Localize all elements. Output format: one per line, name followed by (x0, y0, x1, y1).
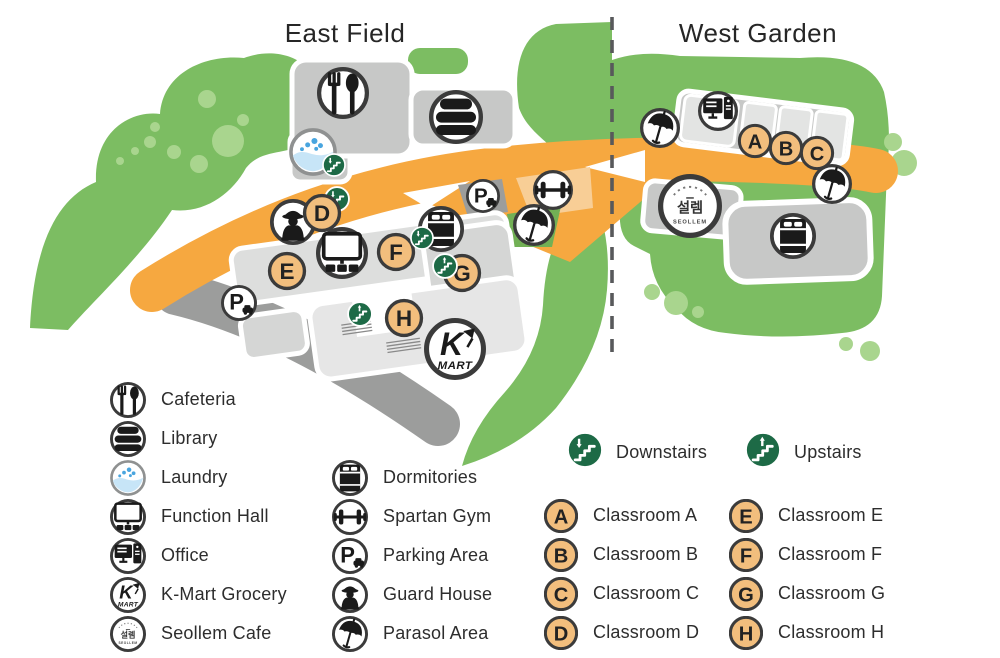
legend-label: Classroom A (593, 505, 697, 526)
svg-text:A: A (554, 506, 569, 528)
parking-icon: P (332, 538, 368, 574)
map-marker-gym (535, 172, 572, 209)
west-garden-title: West Garden (679, 18, 837, 48)
map-marker-classroom-b: B (770, 132, 801, 163)
legend-facilities-column-1: Cafeteria Library Laundry Function Hall (110, 380, 287, 653)
library-icon (110, 421, 146, 457)
classroom-g-legend-icon: G (729, 577, 763, 611)
legend-label: Laundry (161, 467, 227, 488)
upstairs-icon (744, 431, 782, 469)
legend-label: Upstairs (794, 442, 862, 463)
svg-text:D: D (554, 623, 569, 645)
legend-classrooms-column-2: E Classroom E F Classroom F G Classroom … (729, 496, 885, 652)
legend-label: Dormitories (383, 467, 477, 488)
legend-item-parking: P Parking Area (332, 536, 492, 575)
svg-text:E: E (739, 506, 752, 528)
legend-label: Guard House (383, 584, 492, 605)
legend-item-classroom-a: A Classroom A (544, 496, 699, 535)
function-hall-icon (110, 499, 146, 535)
legend-label: Classroom H (778, 622, 884, 643)
map-marker-parking: P (467, 180, 498, 211)
svg-text:P: P (229, 290, 244, 315)
classroom-e-legend-icon: E (729, 499, 763, 533)
legend-item-kmart: K MART K-Mart Grocery (110, 575, 287, 614)
legend-item-downstairs: Downstairs (566, 432, 707, 472)
classroom-icon: A (544, 499, 578, 533)
legend-item-classroom-c: C Classroom C (544, 574, 699, 613)
svg-text:C: C (810, 143, 825, 165)
classroom-a-legend-icon: A (544, 499, 578, 533)
downstairs-legend-icon (566, 431, 604, 474)
map-marker-parasol (642, 108, 679, 146)
map-marker-classroom-c: C (801, 137, 832, 168)
legend-label: Spartan Gym (383, 506, 491, 527)
laundry-legend-icon (110, 460, 146, 496)
svg-text:A: A (748, 131, 763, 153)
classroom-icon: C (544, 577, 578, 611)
legend-item-parasol: Parasol Area (332, 614, 492, 653)
classroom-f-legend-icon: F (729, 538, 763, 572)
svg-text:F: F (740, 545, 752, 567)
kmart-icon: K MART (110, 577, 146, 613)
map-marker-downstairs (411, 227, 433, 249)
dormitory-legend-icon (332, 460, 368, 496)
map-marker-kmart: K MART (427, 321, 484, 378)
map-marker-parking: P (222, 286, 255, 319)
dormitory-icon (332, 460, 368, 496)
legend-item-dormitory: Dormitories (332, 458, 492, 497)
classroom-c-legend-icon: C (544, 577, 578, 611)
legend-item-classroom-e: E Classroom E (729, 496, 885, 535)
parking-legend-icon: P (332, 538, 368, 574)
legend-label: Cafeteria (161, 389, 236, 410)
legend-item-gym: Spartan Gym (332, 497, 492, 536)
map-marker-parasol (814, 164, 851, 202)
svg-text:SEOLLEM: SEOLLEM (118, 640, 137, 644)
classroom-icon: E (729, 499, 763, 533)
map-marker-cafeteria (319, 69, 367, 117)
map-marker-classroom-h: H (387, 301, 422, 336)
legend-item-laundry: Laundry (110, 458, 287, 497)
legend-label: Office (161, 545, 209, 566)
guard-icon (332, 577, 368, 613)
classroom-icon: F (729, 538, 763, 572)
map-marker-upstairs (348, 302, 372, 326)
svg-text:P: P (340, 542, 355, 567)
classroom-icon: B (544, 538, 578, 572)
map-marker-classroom-d: D (305, 196, 340, 231)
legend-label: Seollem Cafe (161, 623, 271, 644)
map-marker-classroom-e: E (270, 254, 305, 289)
legend-item-office: Office (110, 536, 287, 575)
map-marker-seollem: 설렘 SEOLLEM (661, 177, 720, 236)
map-marker-function-hall (318, 229, 366, 277)
svg-text:D: D (314, 201, 330, 226)
map-marker-downstairs (323, 154, 345, 176)
legend-item-classroom-h: H Classroom H (729, 613, 885, 652)
classroom-h-legend-icon: H (729, 616, 763, 650)
legend-item-function-hall: Function Hall (110, 497, 287, 536)
legend-item-upstairs: Upstairs (744, 432, 862, 472)
svg-text:SEOLLEM: SEOLLEM (673, 220, 707, 226)
map-marker-classroom-f: F (379, 235, 414, 270)
map-marker-classroom-a: A (739, 125, 770, 156)
parasol-legend-icon (332, 616, 368, 652)
campus-map-page: D E F G H P P (0, 0, 1000, 658)
office-legend-icon (110, 538, 146, 574)
svg-text:K: K (119, 581, 134, 602)
classroom-icon: G (729, 577, 763, 611)
legend-label: Classroom C (593, 583, 699, 604)
legend-item-guard: Guard House (332, 575, 492, 614)
legend-label: Classroom B (593, 544, 698, 565)
svg-text:E: E (279, 259, 294, 284)
legend-item-classroom-g: G Classroom G (729, 574, 885, 613)
legend-label: Library (161, 428, 217, 449)
office-icon (110, 538, 146, 574)
legend-label: Parking Area (383, 545, 488, 566)
function-hall-legend-icon (110, 499, 146, 535)
svg-text:MART: MART (118, 601, 139, 608)
gym-legend-icon (332, 499, 368, 535)
svg-text:C: C (554, 584, 569, 606)
classroom-b-legend-icon: B (544, 538, 578, 572)
map-marker-parasol (515, 204, 554, 244)
map-marker-library (431, 92, 481, 142)
svg-text:설렘: 설렘 (121, 629, 136, 639)
legend-item-classroom-b: B Classroom B (544, 535, 699, 574)
legend-item-cafeteria: Cafeteria (110, 380, 287, 419)
svg-text:B: B (554, 545, 569, 567)
svg-text:K: K (440, 326, 466, 362)
guard-legend-icon (332, 577, 368, 613)
legend-facilities-column-2: Dormitories Spartan Gym P Parking Area G… (332, 458, 492, 653)
kmart-legend-icon: K MART (110, 577, 146, 613)
classroom-icon: H (729, 616, 763, 650)
svg-text:P: P (474, 184, 488, 207)
map-marker-office (700, 93, 737, 130)
svg-text:H: H (396, 306, 412, 331)
classroom-icon: D (544, 616, 578, 650)
legend-label: Classroom F (778, 544, 882, 565)
classroom-d-legend-icon: D (544, 616, 578, 650)
seollem-legend-icon: 설렘 SEOLLEM (110, 616, 146, 652)
legend-item-seollem: 설렘 SEOLLEM Seollem Cafe (110, 614, 287, 653)
legend-label: Parasol Area (383, 623, 488, 644)
map-marker-upstairs (433, 254, 457, 278)
downstairs-icon (566, 431, 604, 469)
legend-item-classroom-d: D Classroom D (544, 613, 699, 652)
map-marker-dormitory (772, 215, 814, 257)
gym-icon (332, 499, 368, 535)
svg-text:F: F (389, 240, 403, 265)
parasol-icon (332, 616, 368, 652)
legend-item-classroom-f: F Classroom F (729, 535, 885, 574)
seollem-icon: 설렘 SEOLLEM (110, 616, 146, 652)
legend-label: Function Hall (161, 506, 269, 527)
upstairs-legend-icon (744, 431, 782, 474)
cafeteria-legend-icon (110, 382, 146, 418)
east-field-title: East Field (285, 18, 406, 48)
legend-label: Downstairs (616, 442, 707, 463)
cafeteria-icon (110, 382, 146, 418)
green-top-patch (408, 48, 468, 74)
library-legend-icon (110, 421, 146, 457)
svg-text:MART: MART (438, 360, 473, 372)
svg-text:H: H (739, 623, 754, 645)
svg-text:G: G (738, 584, 754, 606)
legend-label: K-Mart Grocery (161, 584, 287, 605)
legend-item-library: Library (110, 419, 287, 458)
legend-label: Classroom G (778, 583, 885, 604)
legend-label: Classroom D (593, 622, 699, 643)
legend-label: Classroom E (778, 505, 883, 526)
svg-text:설렘: 설렘 (677, 199, 703, 217)
svg-text:B: B (779, 138, 794, 160)
legend-classrooms-column-1: A Classroom A B Classroom B C Classroom … (544, 496, 699, 652)
laundry-icon (110, 460, 146, 496)
